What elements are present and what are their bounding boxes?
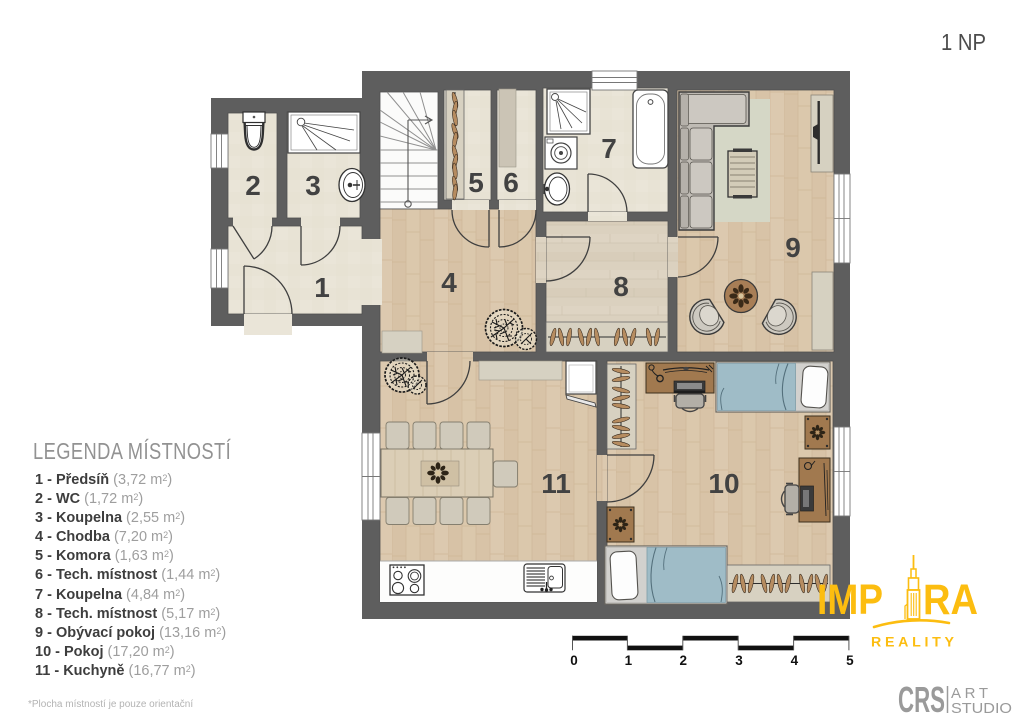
svg-text:4: 4: [441, 267, 457, 298]
svg-text:9: 9: [785, 232, 801, 263]
svg-text:7: 7: [601, 133, 617, 164]
svg-text:10: 10: [708, 468, 739, 499]
svg-text:3: 3: [735, 653, 743, 668]
svg-text:CRS: CRS: [898, 679, 945, 720]
svg-text:0: 0: [570, 653, 578, 668]
svg-text:5: 5: [468, 167, 484, 198]
svg-text:5: 5: [846, 653, 854, 668]
svg-text:2: 2: [679, 653, 687, 668]
svg-text:REALITY: REALITY: [871, 635, 955, 651]
svg-text:STUDIO: STUDIO: [951, 700, 1012, 717]
svg-text:3: 3: [305, 170, 321, 201]
svg-text:IMP: IMP: [817, 576, 883, 624]
svg-text:2: 2: [245, 170, 261, 201]
svg-text:1: 1: [314, 272, 330, 303]
svg-text:4: 4: [791, 653, 799, 668]
svg-text:6: 6: [503, 167, 519, 198]
svg-text:1: 1: [625, 653, 633, 668]
svg-text:8: 8: [613, 271, 629, 302]
svg-text:11: 11: [541, 468, 571, 499]
svg-text:RA: RA: [923, 576, 978, 624]
